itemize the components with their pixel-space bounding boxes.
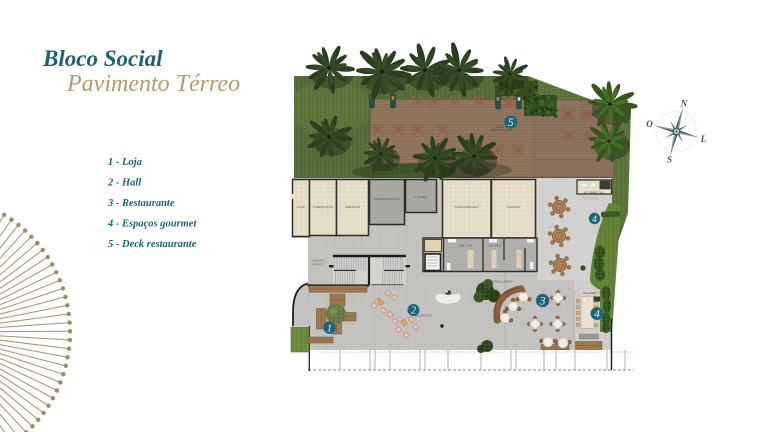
svg-text:S: S (667, 155, 672, 165)
svg-text:2 - Hall: 2 - Hall (107, 178, 141, 189)
svg-text:Bloco Social: Bloco Social (42, 46, 163, 71)
svg-text:GERADOR: GERADOR (345, 205, 360, 209)
svg-text:ALMOXARIFADO: ALMOXARIFADO (455, 205, 479, 209)
svg-text:1 - Loja: 1 - Loja (108, 157, 142, 168)
svg-text:LIXEIRA: LIXEIRA (415, 195, 427, 199)
svg-text:LOJA: LOJA (297, 205, 305, 209)
svg-text:PNE MASC: PNE MASC (488, 245, 503, 248)
svg-text:4: 4 (594, 309, 600, 321)
svg-text:L: L (700, 134, 707, 144)
svg-text:COZINHA: COZINHA (507, 205, 521, 209)
svg-text:GOURMET 02: GOURMET 02 (583, 291, 603, 295)
svg-text:CIRCULAÇÃO: CIRCULAÇÃO (491, 279, 513, 284)
svg-text:Pavimento Térreo: Pavimento Térreo (66, 71, 240, 97)
svg-text:ACESSO: ACESSO (312, 260, 324, 263)
svg-text:DML FUN.: DML FUN. (459, 245, 473, 248)
svg-text:1: 1 (327, 322, 332, 334)
svg-text:SERVIÇO: SERVIÇO (311, 264, 324, 267)
svg-text:GOURMET 01: GOURMET 01 (584, 190, 604, 194)
svg-text:5 - Deck restaurante: 5 - Deck restaurante (108, 239, 197, 250)
svg-text:5: 5 (508, 117, 514, 129)
svg-text:N: N (680, 99, 688, 109)
svg-text:3: 3 (539, 296, 546, 308)
svg-text:4 - Espaços gourmet: 4 - Espaços gourmet (107, 219, 197, 230)
svg-text:RESTAURANTE: RESTAURANTE (492, 129, 513, 132)
svg-text:O: O (646, 119, 653, 129)
svg-text:3 - Restaurante: 3 - Restaurante (107, 198, 175, 209)
svg-text:4: 4 (592, 214, 597, 225)
